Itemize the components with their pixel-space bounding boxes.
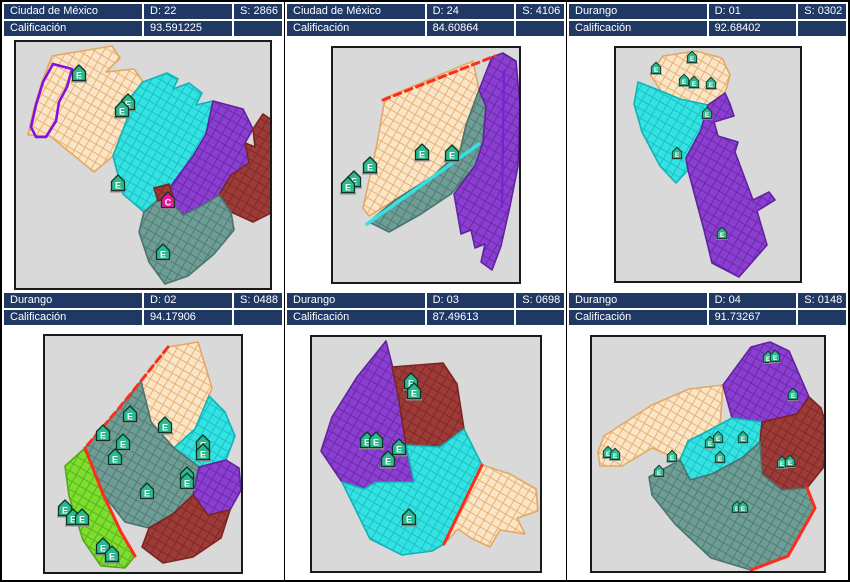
panel-durango-d01: Durango D: 01 S: 0302 Calificación 92.68… — [567, 2, 848, 291]
empty-cell — [798, 21, 846, 36]
district-value: D: 01 — [709, 4, 797, 19]
panel-durango-d03: Durango D: 03 S: 0698 Calificación 87.49… — [285, 291, 567, 580]
svg-text:E: E — [79, 514, 85, 524]
panel-ciudad-de-mexico-d24: Ciudad de México D: 24 S: 4106 Calificac… — [285, 2, 567, 291]
svg-text:E: E — [160, 249, 166, 259]
svg-text:E: E — [707, 440, 712, 447]
district-report-grid: Ciudad de México D: 22 S: 2866 Calificac… — [0, 0, 850, 582]
map-image[interactable]: EEEEEEEEEEEEEEE — [590, 335, 826, 573]
svg-text:E: E — [790, 392, 795, 399]
empty-cell — [516, 21, 564, 36]
panel-header: Durango D: 02 S: 0488 Calificación 94.17… — [2, 291, 284, 325]
score-label: Calificación — [569, 21, 707, 36]
map-cell: EEEEEEE — [285, 327, 566, 580]
score-label: Calificación — [4, 21, 142, 36]
empty-cell — [234, 310, 282, 325]
panel-title: Durango — [569, 4, 707, 19]
svg-text:E: E — [109, 551, 115, 561]
svg-text:E: E — [717, 455, 722, 462]
score-label: Calificación — [287, 310, 425, 325]
svg-text:E: E — [372, 437, 378, 447]
panel-title: Durango — [4, 293, 142, 308]
map-image[interactable]: EEEECE — [14, 40, 272, 290]
svg-text:E: E — [366, 162, 372, 172]
score-value: 92.68402 — [709, 21, 797, 36]
svg-text:E: E — [344, 182, 350, 192]
score-value: 93.591225 — [144, 21, 232, 36]
svg-text:C: C — [165, 197, 172, 207]
section-value: S: 0488 — [234, 293, 282, 308]
empty-cell — [516, 310, 564, 325]
svg-text:E: E — [715, 435, 720, 442]
svg-text:E: E — [144, 488, 150, 498]
svg-text:E: E — [772, 354, 777, 361]
svg-text:E: E — [384, 456, 390, 466]
score-label: Calificación — [4, 310, 142, 325]
svg-text:E: E — [112, 454, 118, 464]
panel-header: Durango D: 04 S: 0148 Calificación 91.73… — [567, 291, 848, 325]
svg-text:E: E — [162, 422, 168, 432]
section-value: S: 2866 — [234, 4, 282, 19]
map-image[interactable]: EEEEEEEE — [614, 46, 802, 283]
map-image[interactable]: EEEEEEEEEEEEEEE — [43, 334, 243, 574]
score-value: 87.49613 — [427, 310, 515, 325]
score-value: 94.17906 — [144, 310, 232, 325]
district-value: D: 24 — [427, 4, 515, 19]
map-cell: EEEEEEEE — [567, 38, 848, 291]
svg-text:E: E — [704, 112, 709, 119]
section-value: S: 4106 — [516, 4, 564, 19]
region-purple[interactable] — [321, 341, 414, 489]
svg-text:E: E — [708, 82, 713, 89]
svg-text:E: E — [779, 460, 784, 467]
svg-text:E: E — [127, 411, 133, 421]
section-value: S: 0698 — [516, 293, 564, 308]
svg-text:E: E — [787, 459, 792, 466]
empty-cell — [798, 310, 846, 325]
score-label: Calificación — [569, 310, 707, 325]
score-value: 91.73267 — [709, 310, 797, 325]
panel-header: Durango D: 01 S: 0302 Calificación 92.68… — [567, 2, 848, 36]
panel-title: Durango — [569, 293, 707, 308]
panel-header: Durango D: 03 S: 0698 Calificación 87.49… — [285, 291, 566, 325]
panel-ciudad-de-mexico-d22: Ciudad de México D: 22 S: 2866 Calificac… — [2, 2, 285, 291]
panel-title: Ciudad de México — [287, 4, 425, 19]
svg-text:E: E — [200, 449, 206, 459]
empty-cell — [234, 21, 282, 36]
svg-text:E: E — [76, 70, 82, 80]
svg-text:E: E — [669, 454, 674, 461]
panel-header: Ciudad de México D: 22 S: 2866 Calificac… — [2, 2, 284, 36]
district-value: D: 04 — [709, 293, 797, 308]
district-value: D: 22 — [144, 4, 232, 19]
score-value: 84.60864 — [427, 21, 515, 36]
svg-text:E: E — [120, 439, 126, 449]
panel-title: Ciudad de México — [4, 4, 142, 19]
map-cell: EEEEE — [285, 38, 566, 291]
svg-text:E: E — [115, 180, 121, 190]
svg-text:E: E — [681, 79, 686, 86]
svg-text:E: E — [100, 430, 106, 440]
panel-durango-d02: Durango D: 02 S: 0488 Calificación 94.17… — [2, 291, 285, 580]
map-image[interactable]: EEEEE — [331, 46, 521, 284]
svg-text:E: E — [448, 150, 454, 160]
svg-text:E: E — [740, 435, 745, 442]
svg-text:E: E — [719, 232, 724, 239]
svg-text:E: E — [418, 149, 424, 159]
svg-text:E: E — [184, 478, 190, 488]
svg-text:E: E — [405, 514, 411, 524]
map-image[interactable]: EEEEEEE — [310, 335, 542, 573]
svg-text:E: E — [674, 152, 679, 159]
section-value: S: 0148 — [798, 293, 846, 308]
svg-text:E: E — [395, 444, 401, 454]
svg-text:E: E — [656, 469, 661, 476]
svg-text:E: E — [689, 56, 694, 63]
panel-header: Ciudad de México D: 24 S: 4106 Calificac… — [285, 2, 566, 36]
map-cell: EEEEEEEEEEEEEEE — [2, 327, 284, 580]
svg-text:E: E — [740, 505, 745, 512]
svg-text:E: E — [653, 67, 658, 74]
score-label: Calificación — [287, 21, 425, 36]
district-value: D: 03 — [427, 293, 515, 308]
map-cell: EEEEEEEEEEEEEEE — [567, 327, 848, 580]
section-value: S: 0302 — [798, 4, 846, 19]
district-value: D: 02 — [144, 293, 232, 308]
school-marker-icon[interactable]: E — [653, 465, 665, 477]
panel-title: Durango — [287, 293, 425, 308]
panel-durango-d04: Durango D: 04 S: 0148 Calificación 91.73… — [567, 291, 848, 580]
map-cell: EEEECE — [2, 38, 284, 291]
svg-text:E: E — [119, 106, 125, 116]
svg-text:E: E — [612, 452, 617, 459]
svg-text:E: E — [410, 388, 416, 398]
svg-text:E: E — [691, 81, 696, 88]
